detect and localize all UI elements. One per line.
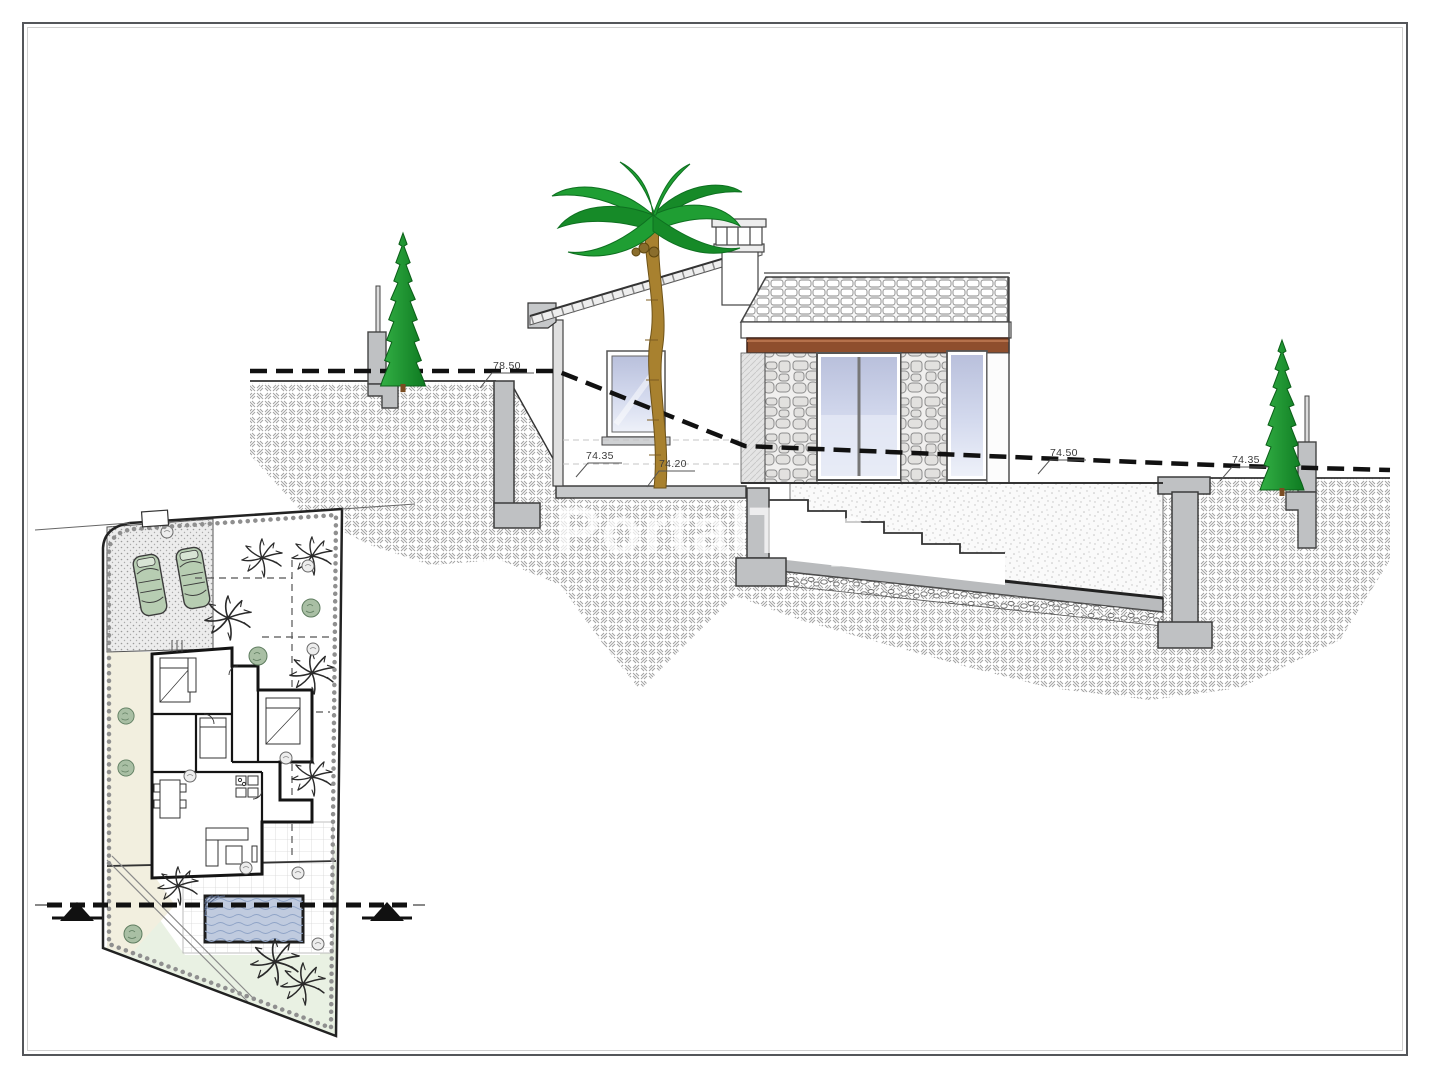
- left-wall: [553, 320, 563, 486]
- architectural-drawing-page: 78.50 74.35 74.20 74.50 74.35 PortalTop: [0, 0, 1432, 1080]
- elevation-label-74-35-left: 74.35: [586, 450, 614, 462]
- fascia-band: [741, 322, 1011, 338]
- white-pier: [987, 353, 1009, 483]
- elevation-label-74-50: 74.50: [1050, 447, 1078, 459]
- section-elevation-view: [250, 162, 1390, 700]
- cypress-tree-left: [381, 233, 426, 392]
- site-plan: [35, 504, 425, 1036]
- cypress-tree-right: [1260, 340, 1304, 496]
- tiled-roof: [741, 277, 1008, 322]
- sliding-glass-door: [817, 353, 901, 480]
- elevation-label-74-20: 74.20: [659, 458, 687, 470]
- side-return-wall: [741, 353, 765, 483]
- entrance-gate: [142, 510, 169, 527]
- stone-pier-middle: [901, 353, 947, 483]
- stone-pier-left: [765, 353, 817, 483]
- elevation-label-74-35-right: 74.35: [1232, 454, 1260, 466]
- parking-area: [107, 519, 213, 652]
- watermark: PortalTop: [512, 492, 912, 568]
- elevation-label-78-50: 78.50: [493, 360, 521, 372]
- glass-window: [947, 351, 987, 480]
- right-building-elevation: [741, 273, 1163, 483]
